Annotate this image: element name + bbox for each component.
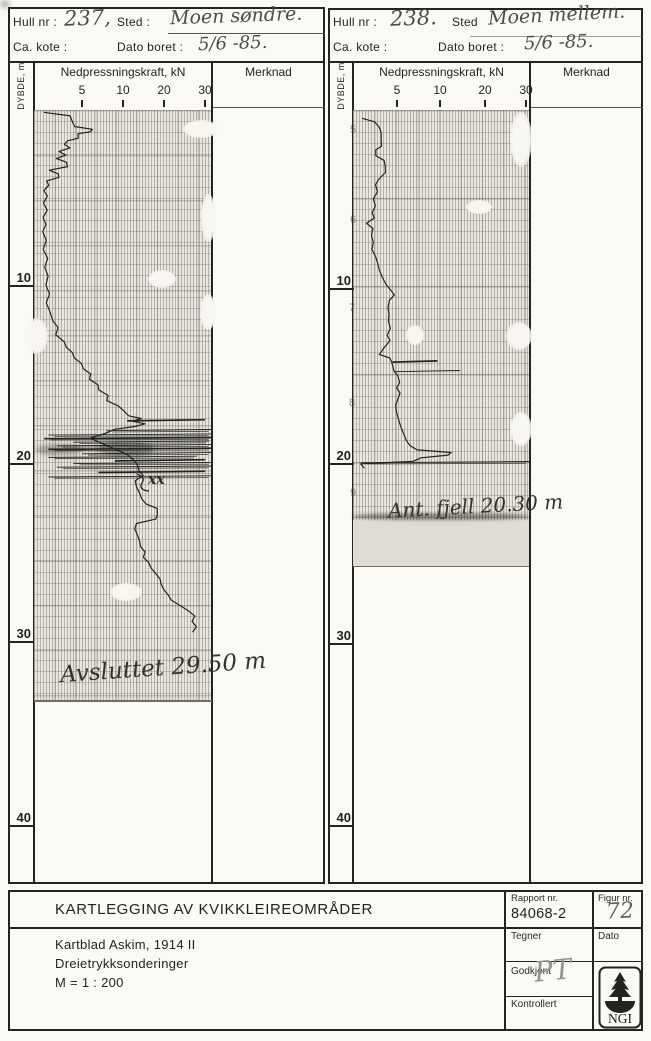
scale-line: M = 1 : 200 <box>55 975 124 990</box>
force-tickmark <box>163 100 165 107</box>
force-tick-20: 20 <box>154 83 174 97</box>
report-title: KARTLEGGING AV KVIKKLEIREOMRÅDER <box>55 901 373 918</box>
force-tickmark <box>525 100 527 107</box>
depth-tickline <box>329 825 354 827</box>
depth-tickline <box>329 463 354 465</box>
sted-value: Moen søndre. <box>170 3 303 30</box>
scan-corner-artifact <box>0 0 10 8</box>
depth-label-40: 40 <box>328 810 351 825</box>
depth-axis-label: DYBDE, m <box>336 62 346 110</box>
kote-label: Ca. kote : <box>13 40 67 54</box>
tree-trunk <box>618 996 622 1001</box>
depth-label-20: 20 <box>328 448 351 463</box>
force-tick-5: 5 <box>387 83 407 97</box>
force-tick-10: 10 <box>113 83 133 97</box>
force-tickmark <box>204 100 206 107</box>
dato-boret-label: Dato boret : <box>117 40 183 54</box>
rapport-nr-label: Rapport nr. <box>511 893 558 904</box>
depth-tickline <box>9 463 34 465</box>
depth-label-40: 40 <box>8 810 31 825</box>
force-tickmark <box>81 100 83 107</box>
depth-label-30: 30 <box>328 628 351 643</box>
merknad-header: Merknad <box>212 65 325 79</box>
ngi-logo: NGI <box>598 966 642 1029</box>
paper-mark-9: 9 <box>350 487 356 499</box>
depth-label-10: 10 <box>328 273 351 288</box>
sted-label: Sted <box>452 15 478 29</box>
kote-label: Ca. kote : <box>333 40 387 54</box>
sounding-curve-237 <box>34 110 212 702</box>
hull-nr-label: Hull nr : <box>13 15 57 29</box>
depth-axis-label-box: DYBDE, m <box>8 62 33 109</box>
force-tickmark <box>439 100 441 107</box>
depth-axis-label: DYBDE, m <box>16 62 26 110</box>
paper-mark-5: 5 <box>350 124 356 136</box>
merknad-header: Merknad <box>530 65 643 79</box>
panel-237-header-rule <box>8 61 325 63</box>
depth-tickline <box>329 288 354 290</box>
paper-mark-8: 8 <box>349 397 355 409</box>
kontrollert-label: Kontrollert <box>511 999 557 1010</box>
dato-boret-value: 5/6 -85. <box>524 31 594 54</box>
paper-mark-7: 7 <box>349 302 355 314</box>
force-tick-20: 20 <box>475 83 495 97</box>
dato-label: Dato <box>598 931 619 942</box>
depth-tickline <box>9 285 34 287</box>
force-tick-30: 30 <box>195 83 215 97</box>
depth-tickline <box>329 643 354 645</box>
scanned-sounding-sheet: Hull nr : 237, Sted : Moen søndre. Ca. k… <box>0 0 651 1041</box>
force-axis-title: Nedpressningskraft, kN <box>36 65 210 79</box>
panel-238-header-rule <box>328 61 643 63</box>
method-line: Dreietrykksonderinger <box>55 956 188 971</box>
force-tick-5: 5 <box>72 83 92 97</box>
title-block-rule <box>504 996 593 997</box>
note-xx: xx <box>148 472 165 488</box>
title-block-rule <box>8 927 643 929</box>
force-tick-10: 10 <box>430 83 450 97</box>
force-tickmark <box>484 100 486 107</box>
force-axis-title: Nedpressningskraft, kN <box>355 65 528 79</box>
spruce-tree-icon <box>609 972 631 997</box>
sted-label: Sted : <box>117 15 150 29</box>
depth-label-10: 10 <box>8 270 31 285</box>
merknad-header-rule <box>213 107 325 108</box>
force-tickmark <box>122 100 124 107</box>
hull-nr-value: 238. <box>390 5 438 31</box>
figur-nr-value: 72 <box>605 898 634 924</box>
tegner-label: Tegner <box>511 931 542 942</box>
depth-axis-label-box: DYBDE, m <box>328 62 353 109</box>
godkjent-signature: PT <box>532 952 573 989</box>
title-block-rule <box>504 961 643 962</box>
rapport-nr-value: 84068-2 <box>511 906 566 922</box>
dato-boret-label: Dato boret : <box>438 40 504 54</box>
depth-tickline <box>9 641 34 643</box>
hull-nr-label: Hull nr : <box>333 15 377 29</box>
depth-label-30: 30 <box>8 626 31 641</box>
depth-label-20: 20 <box>8 448 31 463</box>
ngi-logo-text: NGI <box>608 1011 632 1026</box>
paper-mark-6: 6 <box>350 214 356 226</box>
depth-tickline <box>9 825 34 827</box>
merknad-header-rule <box>531 107 643 108</box>
force-tick-30: 30 <box>516 83 536 97</box>
force-tickmark <box>396 100 398 107</box>
dato-boret-value: 5/6 -85. <box>198 32 268 55</box>
hull-nr-value: 237, <box>64 5 112 31</box>
map-sheet-line: Kartblad Askim, 1914 II <box>55 937 196 952</box>
